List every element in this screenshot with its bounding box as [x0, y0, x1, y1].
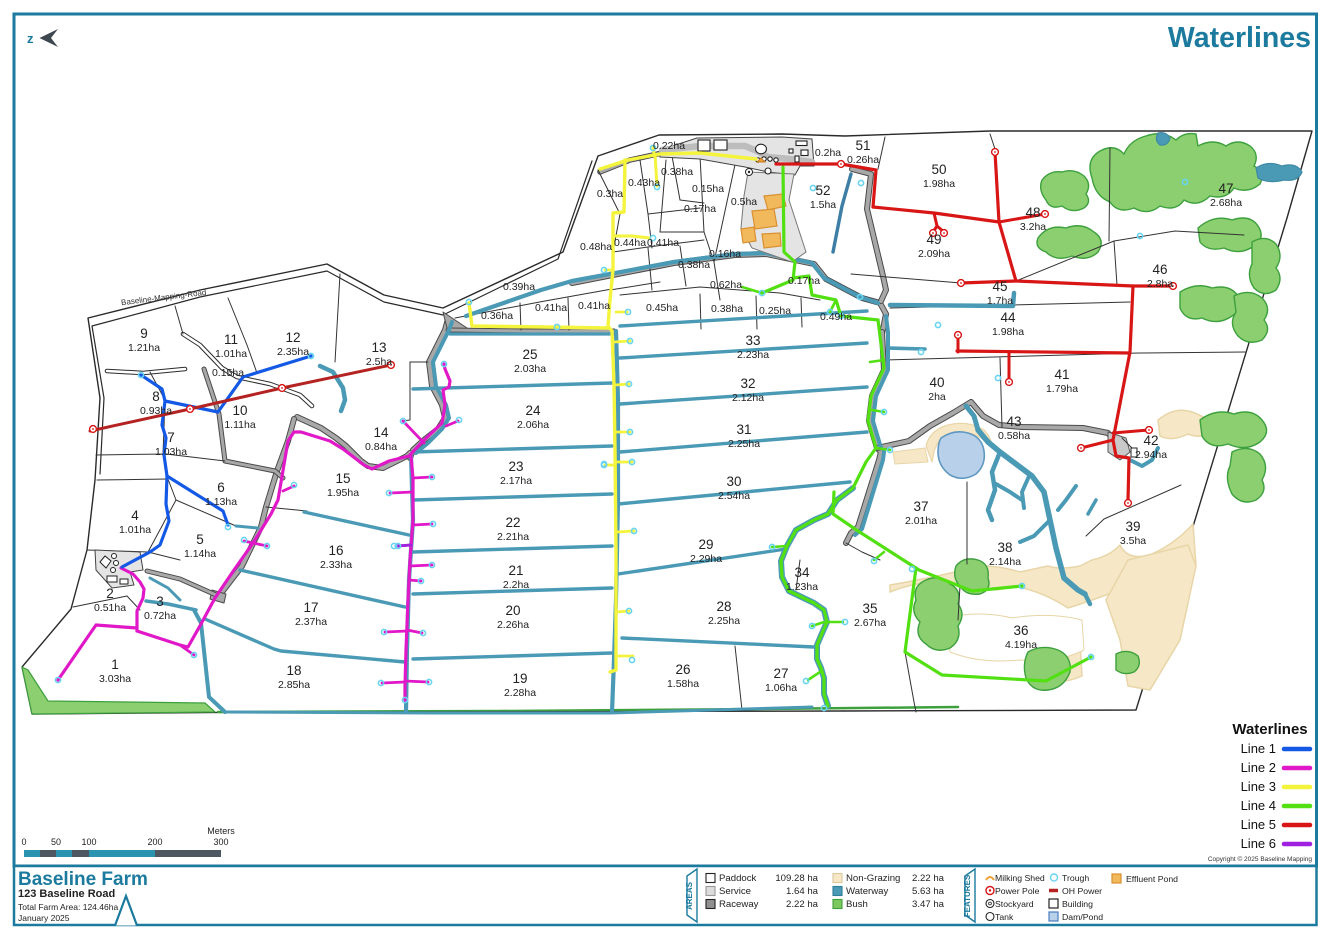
svg-text:2.35ha: 2.35ha	[277, 346, 309, 358]
svg-text:Line 3: Line 3	[1241, 779, 1276, 794]
svg-text:5: 5	[196, 532, 204, 547]
svg-text:0.48ha: 0.48ha	[580, 241, 612, 253]
svg-text:2.94ha: 2.94ha	[1135, 449, 1167, 461]
svg-text:Baseline Farm: Baseline Farm	[18, 869, 148, 890]
svg-text:0.15ha: 0.15ha	[692, 183, 724, 195]
svg-text:0.44ha: 0.44ha	[614, 237, 646, 249]
svg-text:8: 8	[152, 389, 160, 404]
svg-text:2.25ha: 2.25ha	[708, 615, 740, 627]
svg-text:2.12ha: 2.12ha	[732, 392, 764, 404]
svg-text:Line 4: Line 4	[1241, 798, 1276, 813]
svg-text:300: 300	[213, 837, 228, 847]
svg-text:Waterway: Waterway	[846, 886, 888, 897]
svg-text:47: 47	[1218, 181, 1233, 196]
svg-text:109.28 ha: 109.28 ha	[775, 873, 818, 884]
svg-text:3.5ha: 3.5ha	[1120, 535, 1146, 547]
svg-text:30: 30	[726, 474, 741, 489]
svg-text:2.33ha: 2.33ha	[320, 559, 352, 571]
svg-text:2.26ha: 2.26ha	[497, 619, 529, 631]
svg-text:4.19ha: 4.19ha	[1005, 639, 1037, 651]
svg-text:37: 37	[913, 499, 928, 514]
svg-text:39: 39	[1125, 519, 1140, 534]
svg-text:1.11ha: 1.11ha	[224, 419, 255, 431]
svg-text:123 Baseline Road: 123 Baseline Road	[18, 888, 115, 900]
svg-text:z: z	[27, 31, 34, 46]
svg-text:20: 20	[505, 603, 520, 618]
svg-text:0: 0	[21, 837, 26, 847]
svg-text:2.8ha: 2.8ha	[1147, 278, 1173, 290]
svg-text:Meters: Meters	[207, 826, 235, 836]
svg-text:1.01ha: 1.01ha	[119, 524, 151, 536]
svg-text:0.3ha: 0.3ha	[597, 188, 623, 200]
svg-text:40: 40	[929, 375, 944, 390]
svg-text:2.17ha: 2.17ha	[500, 475, 532, 487]
svg-text:1.7ha: 1.7ha	[987, 295, 1013, 307]
svg-text:0.62ha: 0.62ha	[710, 279, 742, 291]
svg-text:35: 35	[862, 601, 877, 616]
svg-text:Total Farm Area: 124.46ha: Total Farm Area: 124.46ha	[18, 902, 118, 912]
svg-text:45: 45	[992, 279, 1007, 294]
svg-text:2.2ha: 2.2ha	[503, 579, 529, 591]
svg-text:1.14ha: 1.14ha	[184, 548, 216, 560]
svg-text:0.38ha: 0.38ha	[711, 303, 743, 315]
svg-text:0.43ha: 0.43ha	[628, 177, 660, 189]
svg-text:0.41ha: 0.41ha	[535, 302, 567, 314]
svg-text:0.51ha: 0.51ha	[94, 602, 126, 614]
svg-text:0.39ha: 0.39ha	[503, 281, 535, 293]
svg-text:Effluent Pond: Effluent Pond	[1126, 874, 1178, 884]
svg-text:31: 31	[736, 422, 751, 437]
svg-text:41: 41	[1054, 367, 1069, 382]
svg-text:22: 22	[505, 515, 520, 530]
svg-text:48: 48	[1025, 205, 1040, 220]
svg-text:Power Pole: Power Pole	[995, 886, 1040, 896]
svg-text:46: 46	[1152, 262, 1167, 277]
svg-text:43: 43	[1006, 414, 1021, 429]
svg-text:23: 23	[508, 459, 523, 474]
svg-text:Building: Building	[1062, 899, 1093, 909]
svg-text:13: 13	[371, 340, 386, 355]
svg-text:10: 10	[232, 403, 247, 418]
svg-text:Waterlines: Waterlines	[1168, 22, 1311, 54]
svg-text:11: 11	[224, 332, 238, 347]
svg-text:0.22ha: 0.22ha	[653, 140, 685, 152]
svg-text:1.21ha: 1.21ha	[128, 342, 160, 354]
svg-text:32: 32	[740, 376, 755, 391]
svg-text:2.68ha: 2.68ha	[1210, 197, 1242, 209]
svg-text:4: 4	[131, 508, 139, 523]
svg-text:2.85ha: 2.85ha	[278, 679, 310, 691]
svg-text:0.38ha: 0.38ha	[678, 259, 710, 271]
svg-text:2.09ha: 2.09ha	[918, 248, 950, 260]
svg-text:0.25ha: 0.25ha	[759, 305, 791, 317]
svg-text:1.03ha: 1.03ha	[155, 446, 187, 458]
svg-text:0.72ha: 0.72ha	[144, 610, 176, 622]
svg-text:2.37ha: 2.37ha	[295, 616, 327, 628]
svg-text:29: 29	[698, 537, 713, 552]
svg-text:1.58ha: 1.58ha	[667, 678, 699, 690]
svg-text:2.67ha: 2.67ha	[854, 617, 886, 629]
svg-text:2.06ha: 2.06ha	[517, 419, 549, 431]
svg-text:0.84ha: 0.84ha	[365, 441, 397, 453]
svg-text:Bush: Bush	[846, 899, 868, 910]
svg-text:0.17ha: 0.17ha	[788, 275, 820, 287]
svg-text:1.23ha: 1.23ha	[786, 581, 818, 593]
svg-text:0.17ha: 0.17ha	[684, 203, 716, 215]
svg-text:2.01ha: 2.01ha	[905, 515, 937, 527]
svg-text:19: 19	[512, 671, 527, 686]
svg-text:0.5ha: 0.5ha	[731, 196, 757, 208]
svg-text:2: 2	[106, 586, 114, 601]
svg-text:0.49ha: 0.49ha	[820, 311, 852, 323]
svg-text:25: 25	[522, 347, 537, 362]
svg-text:January 2025: January 2025	[18, 913, 70, 923]
svg-text:1.5ha: 1.5ha	[810, 199, 836, 211]
svg-text:100: 100	[81, 837, 96, 847]
svg-text:12: 12	[285, 330, 300, 345]
svg-text:16: 16	[328, 543, 343, 558]
svg-text:27: 27	[773, 666, 788, 681]
svg-text:2.03ha: 2.03ha	[514, 363, 546, 375]
svg-text:51: 51	[855, 138, 870, 153]
svg-text:50: 50	[931, 162, 946, 177]
svg-text:Tank: Tank	[995, 912, 1014, 922]
svg-text:AREAS: AREAS	[685, 881, 694, 910]
svg-text:Line 5: Line 5	[1241, 817, 1276, 832]
svg-text:42: 42	[1143, 433, 1158, 448]
svg-text:5.63 ha: 5.63 ha	[912, 886, 945, 897]
svg-text:0.41ha: 0.41ha	[647, 237, 679, 249]
svg-text:6: 6	[217, 480, 225, 495]
svg-text:26: 26	[675, 662, 690, 677]
svg-text:1.06ha: 1.06ha	[765, 682, 797, 694]
svg-text:Line 1: Line 1	[1241, 741, 1276, 756]
svg-text:1.64 ha: 1.64 ha	[786, 886, 819, 897]
svg-text:Trough: Trough	[1062, 873, 1089, 883]
svg-text:17: 17	[303, 600, 318, 615]
svg-text:Service: Service	[719, 886, 751, 897]
svg-text:0.45ha: 0.45ha	[646, 302, 678, 314]
svg-text:Line 2: Line 2	[1241, 760, 1276, 775]
svg-text:2.14ha: 2.14ha	[989, 556, 1021, 568]
svg-text:28: 28	[716, 599, 731, 614]
svg-text:Non-Grazing: Non-Grazing	[846, 873, 900, 884]
svg-text:3.47 ha: 3.47 ha	[912, 899, 945, 910]
svg-text:OH Power: OH Power	[1062, 886, 1102, 896]
svg-text:Milking Shed: Milking Shed	[995, 873, 1045, 883]
svg-text:1.95ha: 1.95ha	[327, 487, 359, 499]
svg-text:0.36ha: 0.36ha	[481, 310, 513, 322]
svg-text:2.54ha: 2.54ha	[718, 490, 750, 502]
svg-text:1: 1	[111, 657, 119, 672]
svg-text:2.25ha: 2.25ha	[728, 438, 760, 450]
svg-text:24: 24	[525, 403, 541, 418]
svg-text:0.38ha: 0.38ha	[661, 166, 693, 178]
svg-text:0.15ha: 0.15ha	[212, 367, 244, 379]
svg-text:3.03ha: 3.03ha	[99, 673, 131, 685]
svg-text:2.21ha: 2.21ha	[497, 531, 529, 543]
svg-text:FEATURES: FEATURES	[963, 874, 972, 917]
svg-text:9: 9	[140, 326, 148, 341]
svg-text:38: 38	[997, 540, 1012, 555]
svg-text:3.2ha: 3.2ha	[1020, 221, 1046, 233]
svg-text:0.41ha: 0.41ha	[578, 300, 610, 312]
svg-text:3: 3	[156, 594, 164, 609]
svg-text:2.23ha: 2.23ha	[737, 349, 769, 361]
svg-text:15: 15	[335, 471, 350, 486]
svg-text:2.22 ha: 2.22 ha	[912, 873, 945, 884]
svg-text:18: 18	[286, 663, 301, 678]
svg-text:0.58ha: 0.58ha	[998, 430, 1030, 442]
svg-text:49: 49	[926, 232, 941, 247]
svg-text:33: 33	[745, 333, 760, 348]
svg-text:52: 52	[815, 183, 830, 198]
svg-text:14: 14	[373, 425, 389, 440]
svg-text:2.29ha: 2.29ha	[690, 553, 722, 565]
svg-text:200: 200	[147, 837, 162, 847]
svg-text:Raceway: Raceway	[719, 899, 759, 910]
svg-text:Copyright © 2025 Baseline Mapp: Copyright © 2025 Baseline Mapping	[1208, 855, 1313, 863]
svg-text:Waterlines: Waterlines	[1232, 721, 1307, 738]
svg-text:50: 50	[51, 837, 61, 847]
svg-text:1.98ha: 1.98ha	[992, 326, 1024, 338]
svg-text:2.22 ha: 2.22 ha	[786, 899, 819, 910]
svg-text:0.26ha: 0.26ha	[847, 154, 879, 166]
svg-text:7: 7	[167, 430, 175, 445]
svg-text:1.13ha: 1.13ha	[205, 496, 237, 508]
svg-text:0.16ha: 0.16ha	[709, 248, 741, 260]
svg-text:1.01ha: 1.01ha	[215, 348, 247, 360]
svg-text:44: 44	[1000, 310, 1016, 325]
svg-text:Stockyard: Stockyard	[995, 899, 1034, 909]
svg-text:0.2ha: 0.2ha	[815, 147, 841, 159]
svg-text:0.93ha: 0.93ha	[140, 405, 172, 417]
svg-text:Dam/Pond: Dam/Pond	[1062, 912, 1103, 922]
svg-text:1.79ha: 1.79ha	[1046, 383, 1078, 395]
svg-text:2.28ha: 2.28ha	[504, 687, 536, 699]
svg-text:34: 34	[794, 565, 810, 580]
svg-text:21: 21	[508, 563, 523, 578]
svg-text:Line 6: Line 6	[1241, 836, 1276, 851]
svg-text:Paddock: Paddock	[719, 873, 757, 884]
svg-text:2ha: 2ha	[928, 391, 946, 403]
svg-text:2.5ha: 2.5ha	[366, 356, 392, 368]
svg-text:1.98ha: 1.98ha	[923, 178, 955, 190]
svg-text:36: 36	[1013, 623, 1028, 638]
